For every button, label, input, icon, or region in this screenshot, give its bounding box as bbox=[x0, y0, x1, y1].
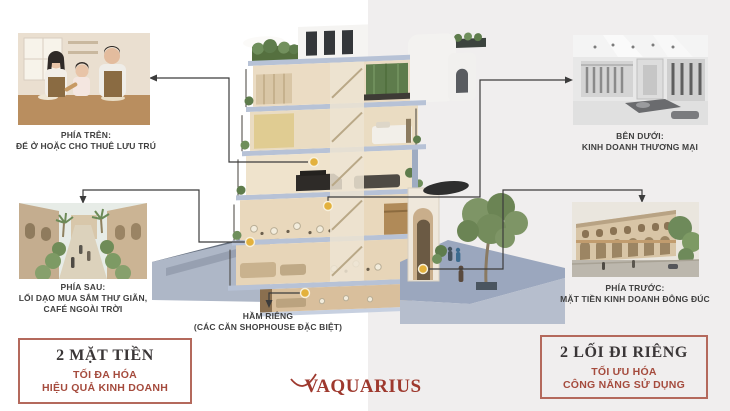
retail-interior-illustration bbox=[573, 35, 708, 125]
callout-front-desc: MẶT TIỀN KINH DOANH ĐÔNG ĐÚC bbox=[555, 294, 715, 305]
marker-commercial-floor bbox=[324, 202, 333, 211]
photo-walking-street bbox=[19, 203, 147, 279]
callout-lower-desc: KINH DOANH THƯƠNG MẠI bbox=[560, 142, 720, 153]
callout-basement-desc: (CÁC CĂN SHOPHOUSE ĐẶC BIỆT) bbox=[188, 322, 348, 333]
marker-front-entry bbox=[419, 265, 428, 274]
callout-basement-title: HẦM RIÊNG bbox=[188, 311, 348, 322]
highlight-right-heading: 2 LỐI ĐI RIÊNG bbox=[542, 344, 706, 362]
callout-back-desc-2: CAFÉ NGOÀI TRỜI bbox=[0, 304, 166, 315]
highlight-left-line1: TỐI ĐA HÓA bbox=[20, 369, 190, 382]
infographic-canvas: PHÍA TRÊN: ĐỂ Ở HOẶC CHO THUÊ LƯU TRÚ PH… bbox=[0, 0, 730, 411]
marker-basement bbox=[301, 289, 310, 298]
callout-upper-floor-title: PHÍA TRÊN: bbox=[1, 130, 171, 141]
callout-upper-floor: PHÍA TRÊN: ĐỂ Ở HOẶC CHO THUÊ LƯU TRÚ bbox=[1, 130, 171, 152]
shophouse-street-illustration bbox=[572, 202, 699, 277]
logo-text: VAQUARIUS bbox=[304, 376, 421, 397]
photo-family-kitchen bbox=[18, 33, 150, 125]
marker-back-entry bbox=[246, 238, 255, 247]
callout-back-title: PHÍA SAU: bbox=[0, 282, 166, 293]
callout-lower-floor: BÊN DƯỚI: KINH DOANH THƯƠNG MẠI bbox=[560, 131, 720, 153]
callout-back-side: PHÍA SAU: LỐI DẠO MUA SẮM THƯ GIÃN, CAFÉ… bbox=[0, 282, 166, 315]
highlight-left-line2: HIỆU QUẢ KINH DOANH bbox=[20, 382, 190, 395]
vaquarius-logo: VAQUARIUS bbox=[289, 369, 431, 401]
highlight-box-2-mat-tien: 2 MẶT TIỀN TỐI ĐA HÓA HIỆU QUẢ KINH DOAN… bbox=[18, 338, 192, 404]
family-kitchen-illustration bbox=[18, 33, 150, 125]
walking-street-illustration bbox=[19, 203, 147, 279]
photo-retail-interior bbox=[573, 35, 708, 125]
callout-lower-title: BÊN DƯỚI: bbox=[560, 131, 720, 142]
vaquarius-wordmark: VAQUARIUS bbox=[289, 369, 431, 401]
callout-basement: HẦM RIÊNG (CÁC CĂN SHOPHOUSE ĐẶC BIỆT) bbox=[188, 311, 348, 333]
callout-front-side: PHÍA TRƯỚC: MẶT TIỀN KINH DOANH ĐÔNG ĐÚC bbox=[555, 283, 715, 305]
callout-front-title: PHÍA TRƯỚC: bbox=[555, 283, 715, 294]
highlight-left-heading: 2 MẶT TIỀN bbox=[20, 347, 190, 365]
highlight-box-2-loi-di-rieng: 2 LỐI ĐI RIÊNG TỐI ƯU HÓA CÔNG NĂNG SỬ D… bbox=[540, 335, 708, 399]
highlight-right-line1: TỐI ƯU HÓA bbox=[542, 366, 706, 379]
marker-upper-floor bbox=[310, 158, 319, 167]
highlight-right-line2: CÔNG NĂNG SỬ DỤNG bbox=[542, 379, 706, 392]
callout-back-desc-1: LỐI DẠO MUA SẮM THƯ GIÃN, bbox=[0, 293, 166, 304]
callout-upper-floor-desc: ĐỂ Ở HOẶC CHO THUÊ LƯU TRÚ bbox=[1, 141, 171, 152]
photo-shophouse-street bbox=[572, 202, 699, 277]
